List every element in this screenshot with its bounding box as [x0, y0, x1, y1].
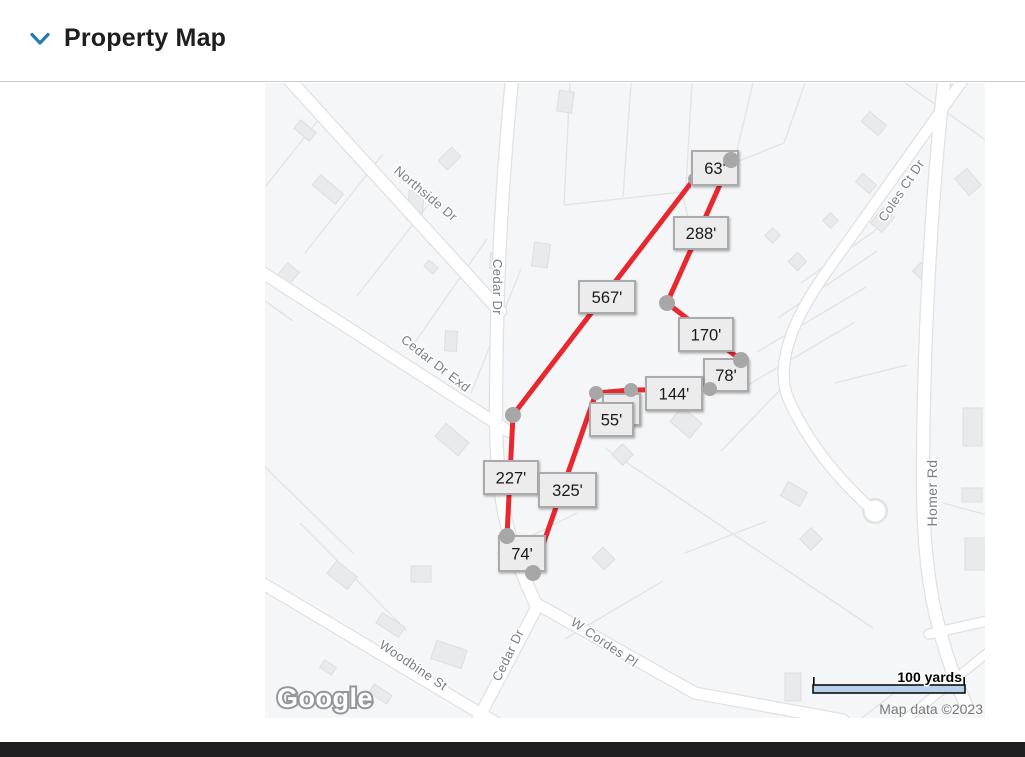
- map-attribution: Map data ©2023: [879, 701, 983, 717]
- building: [557, 90, 575, 113]
- page-footer-bar: [0, 742, 1025, 757]
- boundary-vertex: [505, 407, 521, 423]
- distance-label-text: 74': [511, 546, 533, 564]
- building: [444, 331, 457, 352]
- boundary-vertex: [589, 386, 603, 400]
- culdesac: [865, 501, 886, 522]
- building: [785, 673, 801, 701]
- boundary-vertex: [624, 383, 638, 397]
- google-logo[interactable]: Google: [277, 683, 373, 713]
- building: [531, 242, 550, 268]
- boundary-vertex: [525, 565, 541, 581]
- distance-label-text: 55': [601, 412, 623, 430]
- map-embed[interactable]: Northside DrCedar DrCedar Dr ExdColes Ct…: [265, 83, 985, 718]
- boundary-vertex: [499, 528, 515, 544]
- boundary-vertex: [733, 352, 749, 368]
- building: [962, 488, 982, 502]
- chevron-down-icon[interactable]: [30, 32, 50, 46]
- building: [965, 538, 985, 570]
- distance-label-text: 325': [552, 482, 583, 500]
- scale-label: 100 yards: [897, 669, 962, 685]
- street-label: Homer Rd: [924, 460, 940, 527]
- distance-label-text: 567': [592, 289, 623, 307]
- distance-label-text: 144': [659, 386, 690, 404]
- distance-label-text: 170': [691, 327, 722, 345]
- street-label: Cedar Dr: [490, 259, 505, 315]
- map-canvas: Northside DrCedar DrCedar Dr ExdColes Ct…: [265, 83, 985, 718]
- scale-bar: [813, 685, 965, 693]
- distance-label-text: 78': [715, 367, 737, 385]
- boundary-vertex: [659, 295, 675, 311]
- building: [411, 566, 431, 582]
- distance-label-text: 63': [704, 160, 726, 178]
- boundary-vertex: [723, 152, 739, 168]
- page-title: Property Map: [64, 24, 226, 53]
- section-header: Property Map: [30, 24, 226, 53]
- distance-label-text: 227': [496, 470, 527, 488]
- distance-label-text: 288': [686, 225, 717, 243]
- building: [963, 408, 982, 446]
- section-divider: [0, 81, 1025, 82]
- boundary-vertex: [703, 382, 717, 396]
